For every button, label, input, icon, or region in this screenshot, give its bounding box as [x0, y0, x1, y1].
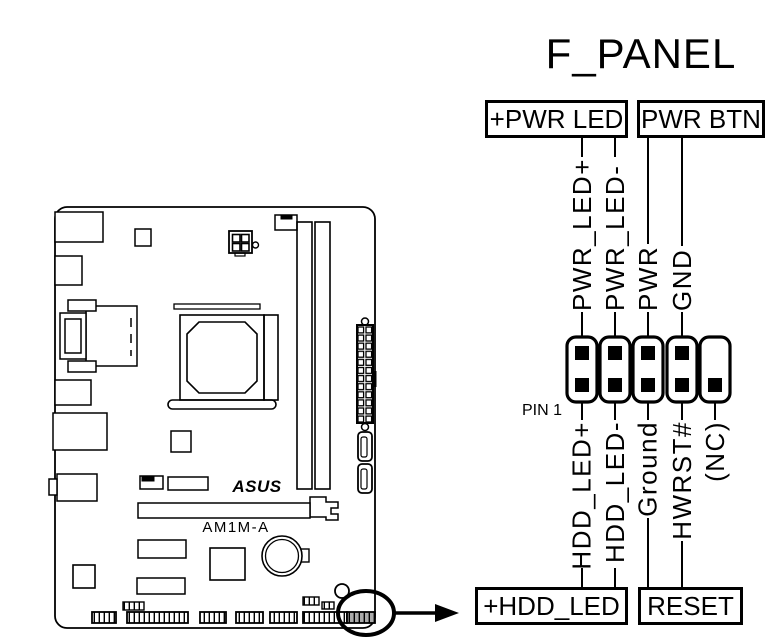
usb-header — [140, 476, 163, 489]
usb-port — [55, 256, 82, 285]
fan-header — [275, 215, 297, 230]
pin-label-pwr-led-plus: PWR_LED+ — [569, 158, 595, 311]
pointer-arrow-head-icon — [435, 604, 459, 622]
reset-box: RESET — [638, 587, 743, 625]
sata-ports — [358, 432, 372, 493]
chipset-chip — [171, 431, 191, 452]
pcie-slot — [138, 497, 338, 520]
fpanel-header-highlighted — [347, 612, 375, 623]
pin-label-pwr-led-minus: PWR_LED- — [602, 165, 628, 311]
cpu-socket — [168, 304, 278, 409]
audio-jack-tab — [49, 479, 57, 495]
pin-label-hwrst: HWRST# — [669, 421, 695, 540]
cmos-battery — [262, 536, 309, 576]
header-block-upper — [138, 540, 186, 558]
fpanel-diagram-canvas: ASUS AM1M-A — [0, 0, 775, 644]
pin-label-hdd-led-minus: HDD_LED- — [602, 421, 628, 563]
ram-slots — [297, 222, 330, 489]
pwr-led-box: +PWR LED — [485, 100, 628, 138]
connector-title: F_PANEL — [481, 30, 775, 78]
pin-label-ground: Ground — [635, 421, 661, 517]
pin-label-nc: (NC) — [702, 421, 728, 482]
model-text: AM1M-A — [202, 519, 269, 536]
diagram-linework: ASUS AM1M-A — [0, 0, 775, 644]
vga-connector — [60, 300, 137, 372]
asus-logo-text: ASUS — [231, 477, 281, 496]
audio-jack — [57, 474, 97, 501]
fpanel-connector-block — [567, 337, 730, 402]
usb-stack-port — [53, 413, 107, 450]
cpu-4pin-power — [229, 231, 259, 256]
com-header — [168, 477, 208, 490]
pin-label-pwr: PWR — [635, 246, 661, 311]
hdd-led-box: +HDD_LED — [475, 587, 628, 625]
pwr-btn-box: PWR BTN — [637, 100, 765, 138]
pin-label-gnd: GND — [669, 249, 695, 311]
audio-codec-chip — [73, 565, 95, 588]
bios-chip — [210, 548, 245, 580]
header-block-lower — [137, 578, 185, 594]
ps2-port — [55, 212, 103, 242]
mosfet-chip — [135, 229, 151, 246]
pin-label-hdd-led-plus: HDD_LED+ — [569, 421, 595, 570]
bottom-headers — [92, 597, 375, 623]
motherboard-diagram: ASUS AM1M-A — [49, 207, 377, 628]
lan-port — [55, 380, 91, 405]
atx-power-connector — [357, 318, 377, 431]
pin1-label: PIN 1 — [498, 402, 562, 420]
